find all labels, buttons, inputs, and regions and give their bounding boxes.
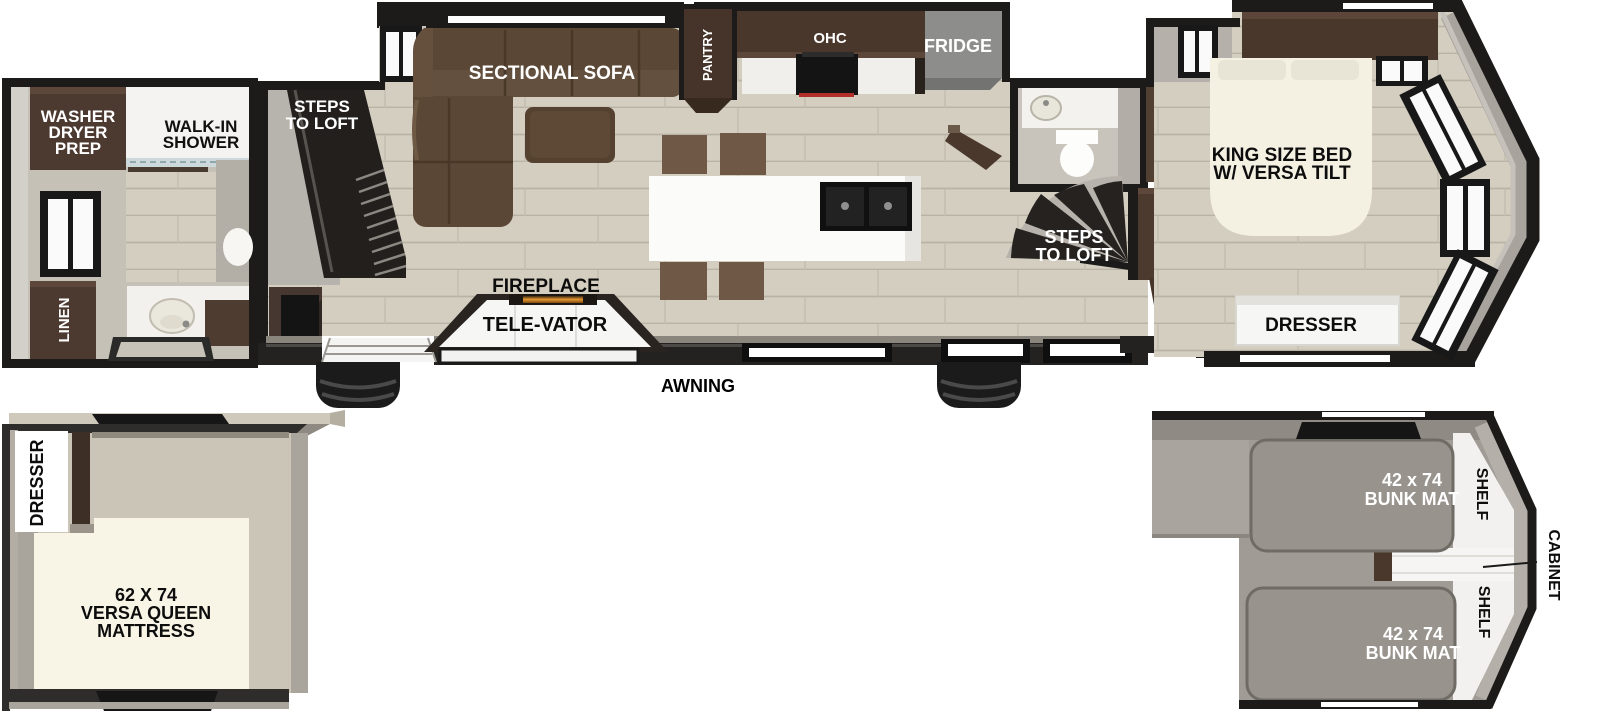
svg-text:BUNK MAT: BUNK MAT [1366, 643, 1461, 663]
svg-text:FRIDGE: FRIDGE [924, 36, 992, 56]
svg-text:W/ VERSA TILT: W/ VERSA TILT [1213, 163, 1351, 184]
svg-text:SECTIONAL SOFA: SECTIONAL SOFA [469, 63, 636, 84]
svg-text:STEPS: STEPS [1044, 227, 1103, 247]
svg-text:VERSA QUEEN: VERSA QUEEN [81, 603, 211, 623]
svg-text:42 x 74: 42 x 74 [1383, 624, 1443, 644]
svg-text:DRESSER: DRESSER [1265, 315, 1357, 336]
svg-text:TO LOFT: TO LOFT [286, 114, 359, 133]
svg-text:TELE-VATOR: TELE-VATOR [483, 314, 608, 336]
svg-text:OHC: OHC [813, 30, 847, 47]
svg-text:AWNING: AWNING [661, 376, 735, 396]
svg-text:DRESSER: DRESSER [27, 439, 47, 526]
svg-text:SHOWER: SHOWER [163, 133, 240, 152]
svg-text:FIREPLACE: FIREPLACE [492, 276, 600, 297]
svg-text:MATTRESS: MATTRESS [97, 621, 195, 641]
svg-text:62 X 74: 62 X 74 [115, 585, 177, 605]
svg-text:PREP: PREP [55, 139, 101, 158]
svg-text:SHELF: SHELF [1475, 586, 1492, 639]
svg-text:BUNK MAT: BUNK MAT [1365, 489, 1460, 509]
svg-text:CABINET: CABINET [1545, 529, 1562, 600]
svg-text:LINEN: LINEN [56, 298, 73, 343]
svg-text:SHELF: SHELF [1473, 468, 1490, 521]
svg-text:42 x 74: 42 x 74 [1382, 470, 1442, 490]
svg-text:PANTRY: PANTRY [700, 29, 715, 81]
svg-text:TO LOFT: TO LOFT [1036, 245, 1113, 265]
